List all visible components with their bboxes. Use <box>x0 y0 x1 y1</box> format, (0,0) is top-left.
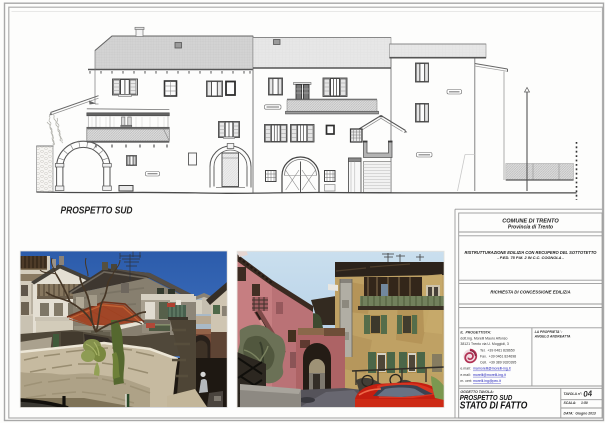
svg-text:e.mail:: e.mail: <box>460 373 470 377</box>
svg-text:LA PROPRIETA' :: LA PROPRIETA' : <box>535 330 563 334</box>
svg-text:1:50: 1:50 <box>581 401 588 405</box>
svg-text:IL PROGETTISTA:: IL PROGETTISTA: <box>460 330 491 334</box>
svg-text:e.mail:: e.mail: <box>460 367 470 371</box>
svg-text:mamorelli@morelli-ing.it: mamorelli@morelli-ing.it <box>473 367 511 371</box>
svg-text:Fax. +39 0461 824698: Fax. +39 0461 824698 <box>480 354 516 358</box>
svg-text:Provincia di Trento: Provincia di Trento <box>508 224 553 230</box>
svg-text:SCALA:: SCALA: <box>564 401 577 405</box>
svg-text:Cell. +39 389 9320395: Cell. +39 389 9320395 <box>480 361 516 365</box>
svg-text:38121 Trento via U. Moggioli,: 38121 Trento via U. Moggioli, 3 <box>460 342 508 346</box>
svg-text:STATO DI FATTO: STATO DI FATTO <box>460 401 528 412</box>
svg-text:04: 04 <box>583 389 593 399</box>
svg-text:m. cert:: m. cert: <box>460 379 472 383</box>
svg-text:dott.ing. Morelli Mauro Alfons: dott.ing. Morelli Mauro Alfonso <box>460 336 507 340</box>
svg-text:morelli@morelli-ing.it: morelli@morelli-ing.it <box>473 373 506 377</box>
svg-text:morelli.ing@pec.it: morelli.ing@pec.it <box>473 379 501 383</box>
svg-text:TAVOLA n°:: TAVOLA n°: <box>564 392 583 396</box>
svg-text:RICHIESTA DI CONCESSIONE EDILI: RICHIESTA DI CONCESSIONE EDILIZIA <box>490 290 570 295</box>
svg-text:DATA: Giugno 2013: DATA: Giugno 2013 <box>564 412 596 416</box>
svg-text:ANGELO ANDREATTA: ANGELO ANDREATTA <box>534 335 571 339</box>
svg-text:- P.ED. 75 P.M. 2 IN C.C. COGN: - P.ED. 75 P.M. 2 IN C.C. COGNOLA - <box>497 255 564 260</box>
svg-text:PROSPETTO SUD: PROSPETTO SUD <box>61 205 133 217</box>
svg-text:Tel. +39 0461 828650: Tel. +39 0461 828650 <box>480 348 515 352</box>
